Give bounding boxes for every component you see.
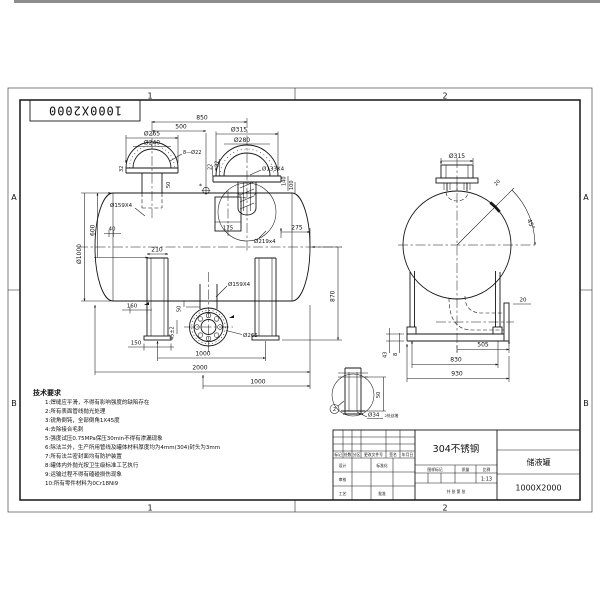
tb-sheets: 共 张 第 张 — [447, 489, 466, 494]
detail-view: 50 Ø34 2处丝堵 2 — [330, 368, 399, 419]
end-view: Ø315 20 45° 20 505 830 930 — [383, 153, 536, 382]
tb-header-weight: 质量 — [462, 467, 470, 472]
dim-50-drain: 50 — [177, 306, 183, 312]
dim-34: Ø34 — [368, 412, 380, 419]
dim-1000-right: 1000 — [250, 379, 265, 386]
angle-annotation: 20 45° — [457, 179, 536, 245]
tech-req-item: 1:焊缝应平滑，不得有影响强度的缺陷存在 — [45, 398, 150, 406]
tb-rev-header: 标记 — [334, 452, 342, 457]
tech-req-title: 技术要求 — [33, 388, 62, 397]
tech-req-item: 9:运输过程不得有磕碰损伤现象 — [45, 470, 122, 478]
zone-bottom-2: 2 — [442, 504, 447, 513]
weld-symbols — [144, 302, 234, 318]
dim-265-flange: Ø265 — [243, 332, 258, 339]
dim-219x4: Ø219x4 — [254, 238, 276, 245]
dim-133x4: Ø133X4 — [262, 166, 285, 173]
zone-left-b: B — [11, 399, 17, 408]
tech-req-item: 6:除法兰外，生产所用管线及罐体材料厚度均为4mm(304)封头为3mm — [45, 443, 220, 451]
dim-43: 43 — [383, 352, 389, 358]
dim-315-end: Ø315 — [449, 153, 465, 160]
dim-100: 100 — [289, 180, 295, 190]
dim-20-pad: 20 — [493, 179, 502, 188]
tech-req-item: 4:去除接合毛刺 — [45, 425, 84, 433]
zone-left-a: A — [11, 193, 17, 202]
tb-rev-header: 分区 — [353, 452, 361, 457]
tb-role-check: 审核 — [339, 477, 347, 482]
tech-req-item: 10:所有零件材料为0Cr18Ni9 — [45, 479, 119, 487]
tech-req-item: 7:所有法兰密封面均有防护装置 — [45, 452, 122, 460]
star-mark: * — [199, 183, 202, 190]
dim-850: 850 — [196, 115, 208, 122]
tb-part-name: 储液罐 — [527, 457, 551, 467]
dim-140: 140 — [282, 176, 288, 186]
dim-32-left: 32 — [119, 166, 125, 172]
tank-shell — [78, 193, 342, 301]
tb-rev-header: 处数 — [344, 452, 352, 457]
front-view: * 175 — [76, 115, 342, 390]
dim-240: Ø240 — [144, 140, 160, 147]
tech-req-item: 8:罐体内外抛光按卫生级标准工艺执行 — [45, 461, 139, 469]
zone-right-b: B — [583, 399, 589, 408]
dim-315: Ø315 — [231, 127, 247, 134]
tb-role-standard: 标准化 — [376, 463, 388, 468]
dim-8xd22: 8—Ø22 — [183, 149, 201, 156]
zone-right-a: A — [583, 193, 589, 202]
dim-160: 160 — [127, 304, 138, 310]
dim-dia1000: Ø1000 — [76, 244, 83, 264]
dim-280: Ø280 — [234, 137, 250, 144]
corner-number-box: 1000X2000 — [30, 100, 140, 121]
dim-50-neck: 50 — [166, 182, 172, 188]
dim-1000-left: 1000 — [195, 351, 210, 358]
support-legs — [144, 258, 279, 340]
dim-275: 275 — [291, 225, 303, 232]
tb-role-approve: 批准 — [378, 491, 386, 496]
dim-32-right: 32 — [215, 161, 221, 167]
dim-930: 930 — [451, 371, 463, 378]
dim-159x4-bottom: Ø159X4 — [228, 281, 251, 288]
title-block: 标记 处数 分区 更改文件号 签名 年月日 设计 标准化 审核 工艺 批准 30… — [333, 430, 580, 500]
balloon-number: 2 — [333, 407, 336, 413]
dim-20-plate: 20 — [520, 298, 527, 304]
dim-175: 175 — [223, 226, 234, 232]
window-edge-artifact — [14, 0, 600, 3]
dim-210: 210 — [151, 247, 163, 254]
dim-870: 870 — [330, 290, 337, 302]
corner-number-text: 1000X2000 — [48, 104, 122, 118]
dim-830: 830 — [450, 357, 462, 364]
tb-rev-header: 更改文件号 — [364, 452, 383, 457]
tb-header-mark: 图样标记 — [427, 467, 442, 472]
dim-600: 600 — [90, 224, 97, 236]
tech-req-item: 5:强度试压0.75MPa保压30min不得有渗漏现象 — [45, 434, 163, 442]
saddle-base — [407, 271, 514, 341]
zone-bottom-1: 1 — [147, 504, 152, 513]
detail-note: 2处丝堵 — [385, 413, 399, 418]
tb-role-design: 设计 — [339, 463, 347, 468]
dim-2000: 2000 — [192, 365, 207, 372]
dim-45deg: 45° — [525, 218, 536, 231]
tb-role-process: 工艺 — [339, 491, 347, 496]
dim-500: 500 — [175, 124, 187, 131]
tb-rev-header: 年月日 — [402, 452, 414, 457]
front-dimensions: 850 500 Ø265 Ø240 8—Ø22 32 50 Ø315 Ø280 … — [76, 115, 342, 390]
dim-45pm2: 45±2 — [170, 326, 176, 340]
dim-505: 505 — [477, 342, 489, 349]
dim-22: 22 — [208, 164, 214, 170]
tech-req-item: 2:所有表面管线抛光处理 — [45, 407, 106, 415]
cad-drawing-screenshot: 1 2 1 2 A B A B 1000X2000 — [0, 0, 600, 600]
zone-top-1: 1 — [147, 92, 152, 101]
dim-8: 8 — [393, 353, 399, 356]
tb-material: 304不锈钢 — [433, 443, 480, 455]
zone-top-2: 2 — [442, 92, 447, 101]
dim-159x4-top: Ø159X4 — [110, 202, 133, 209]
tech-req-item: 3:锐角倒钝，全部倒角1X45度 — [45, 416, 120, 424]
tb-drawing-number: 1000X2000 — [515, 484, 561, 493]
gauge-box: 175 — [215, 191, 241, 237]
tb-scale-value: 1:13 — [481, 477, 492, 483]
dim-265: Ø265 — [144, 131, 160, 138]
technical-requirements: 技术要求 1:焊缝应平滑，不得有影响强度的缺陷存在 2:所有表面管线抛光处理 3… — [33, 388, 220, 487]
dim-50-detail: 50 — [376, 392, 382, 398]
dim-40: 40 — [109, 227, 116, 233]
drawing-sheet: 1 2 1 2 A B A B 1000X2000 — [0, 0, 600, 600]
tb-header-scale: 比例 — [483, 467, 491, 472]
dim-150: 150 — [131, 341, 142, 347]
tb-rev-header: 签名 — [389, 452, 397, 457]
